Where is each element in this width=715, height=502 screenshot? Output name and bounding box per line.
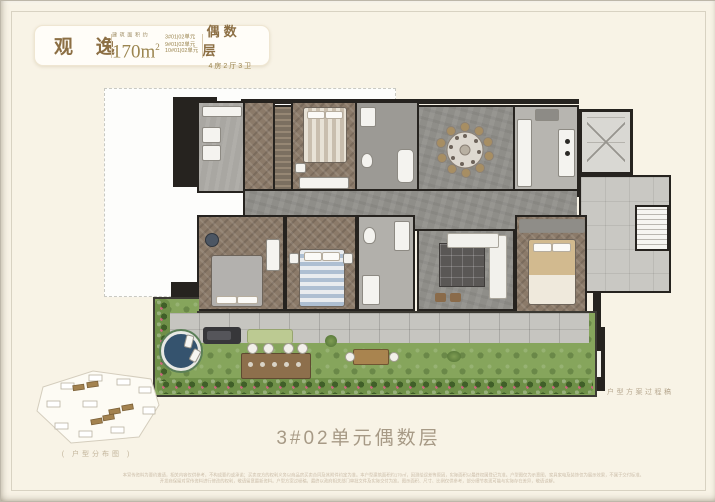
bathtub <box>397 149 414 183</box>
toilet <box>363 227 376 244</box>
dresser <box>299 177 349 189</box>
site-plan-caption: ( 户型分布图 ) <box>29 449 165 459</box>
shower <box>394 221 410 251</box>
disclaimer-line-2: 开发商保留对宣传资料进行修改的权利，敬请留意最新资料。户型方案过程稿，最终以政府… <box>123 479 595 485</box>
pillow <box>322 252 341 261</box>
fridge <box>535 109 559 121</box>
bed <box>299 249 345 307</box>
shelf <box>202 106 242 117</box>
island-counter <box>517 119 532 187</box>
bar-stool <box>247 343 258 354</box>
patio-table-set <box>353 349 389 365</box>
outdoor-bar-table <box>241 353 311 379</box>
desk <box>266 239 280 271</box>
bed <box>528 239 576 305</box>
nightstand <box>295 163 306 173</box>
bedroom-2 <box>291 101 357 193</box>
bathroom-2 <box>355 101 419 193</box>
washer <box>202 127 221 143</box>
bed <box>303 107 347 163</box>
patio-chair <box>389 352 399 362</box>
patio-chair <box>345 352 355 362</box>
pillow <box>533 243 552 253</box>
pillow <box>552 243 571 253</box>
bed <box>211 255 263 307</box>
bar-stool <box>297 343 308 354</box>
stool <box>205 233 219 247</box>
wardrobe <box>519 219 585 233</box>
floor-type: 偶数层 <box>203 21 257 59</box>
kitchen <box>513 105 579 197</box>
pillow <box>307 111 325 119</box>
toilet <box>361 153 373 168</box>
living-room <box>417 229 515 311</box>
garden-shrub <box>447 351 461 362</box>
nightstand <box>343 253 353 264</box>
burner <box>565 151 570 156</box>
bedroom-3 <box>197 215 285 311</box>
area-rug <box>439 243 485 287</box>
walk-in-closet <box>273 105 293 193</box>
elevator-x-brace <box>587 117 625 167</box>
title-card: 观 逸 建筑面积约 170m2 3#01|02单元 9#01|02单元 10#0… <box>34 25 270 66</box>
master-bedroom <box>515 215 587 313</box>
unit-list: 3#01|02单元 9#01|02单元 10#01|02单元 <box>165 35 198 55</box>
laundry-room <box>197 101 245 193</box>
unit-item: 10#01|02单元 <box>165 49 198 56</box>
vanity <box>362 275 380 305</box>
area-block: 建筑面积约 170m2 3#01|02单元 9#01|02单元 10#01|02… <box>112 29 202 61</box>
bedroom-4 <box>285 215 357 311</box>
dryer <box>202 145 221 161</box>
room-layout: 4房2厅3卫 <box>206 61 253 71</box>
elevator-shaft <box>579 109 633 175</box>
garden-shrub <box>325 335 337 347</box>
yoga-mat <box>247 329 293 344</box>
pillow <box>304 252 323 261</box>
sink <box>360 107 376 127</box>
bar-stool <box>283 343 294 354</box>
pillow <box>325 111 343 119</box>
round-dining-table <box>433 119 497 183</box>
ottoman <box>450 293 461 302</box>
area-label: 建筑面积约 <box>112 31 150 39</box>
project-title: 观 逸 <box>45 32 111 59</box>
floorplan-poster: 观 逸 建筑面积约 170m2 3#01|02单元 9#01|02单元 10#0… <box>0 0 715 502</box>
disclaimer-text: 本宣传资料为要约邀请，相关内容仅供参考，不构成要约或承诺；买卖双方的权利义务以商… <box>123 473 595 485</box>
burner <box>565 139 570 144</box>
bathroom-3 <box>357 215 415 311</box>
nightstand <box>289 253 299 264</box>
sofa <box>447 233 499 248</box>
treadmill <box>203 327 241 344</box>
area-sup: 2 <box>155 42 160 52</box>
draft-watermark: 户型方案过程稿 <box>607 387 674 397</box>
stairwell <box>635 205 669 251</box>
site-plan-sketch <box>31 367 163 447</box>
dining-room <box>417 105 515 195</box>
pillow <box>237 296 258 304</box>
floor-type-block: 偶数层 4房2厅3卫 <box>203 21 259 71</box>
bar-stool <box>263 343 274 354</box>
area-value: 170m2 <box>112 38 160 61</box>
ottoman <box>435 293 446 302</box>
flower-bed-bottom <box>157 378 593 394</box>
pillow <box>216 296 237 304</box>
